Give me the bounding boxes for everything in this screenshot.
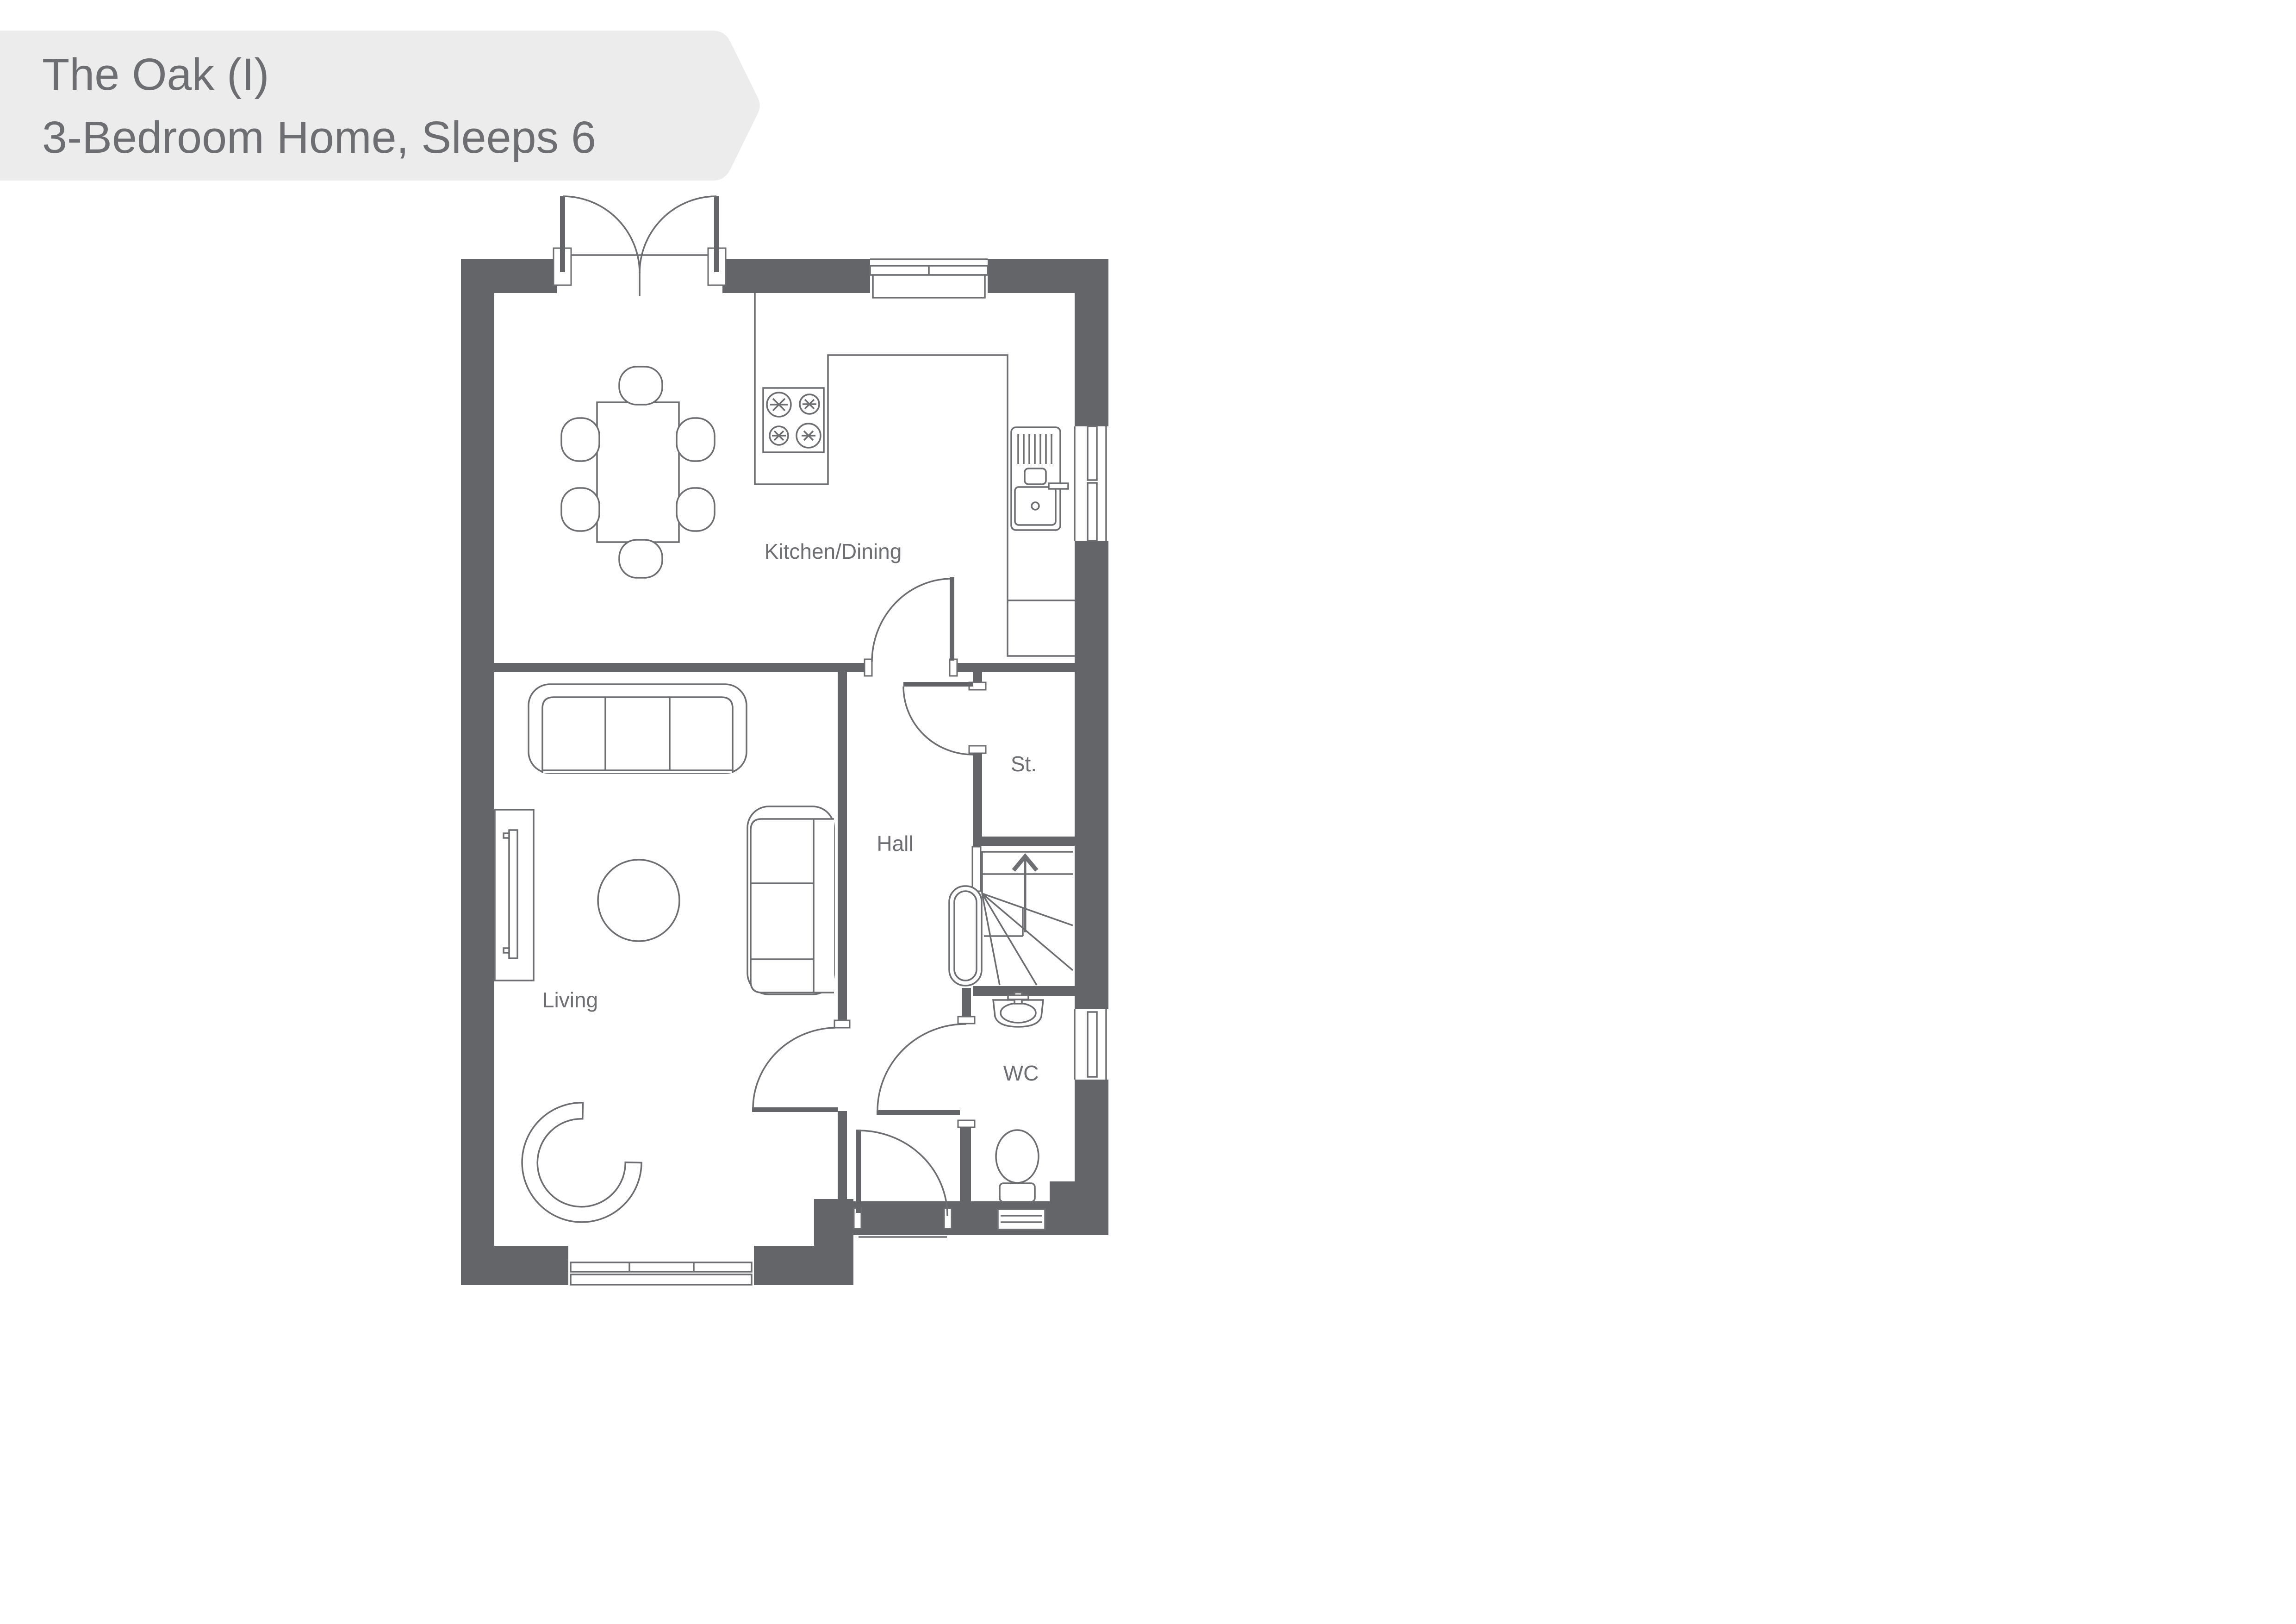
svg-text:The Oak (I): The Oak (I) xyxy=(42,49,269,100)
svg-text:Hall: Hall xyxy=(877,831,913,856)
svg-text:Living: Living xyxy=(542,988,598,1012)
svg-text:WC: WC xyxy=(1003,1061,1039,1085)
svg-text:Kitchen/Dining: Kitchen/Dining xyxy=(765,539,902,563)
svg-text:3-Bedroom Home, Sleeps 6: 3-Bedroom Home, Sleeps 6 xyxy=(42,112,596,162)
svg-text:St.: St. xyxy=(1011,752,1037,776)
